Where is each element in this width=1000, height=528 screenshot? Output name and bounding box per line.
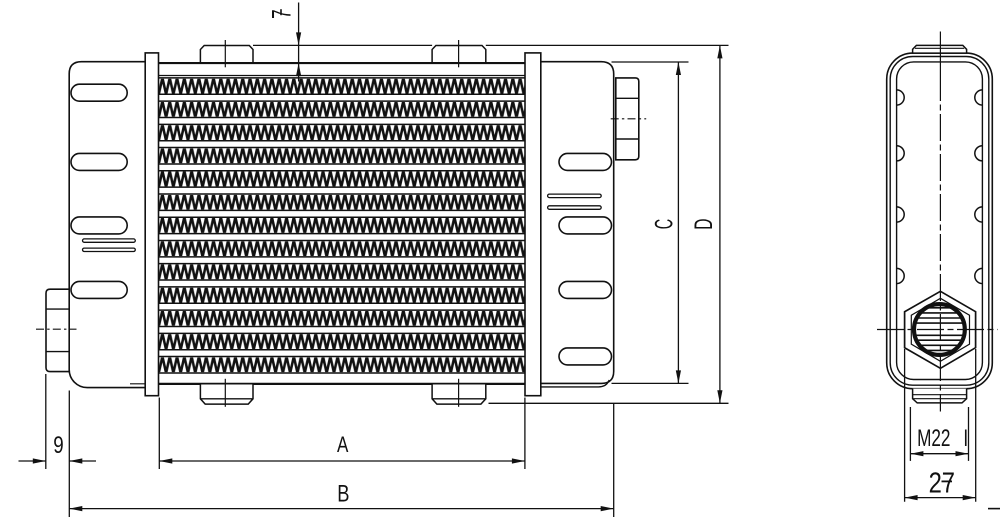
svg-text:9: 9	[53, 431, 63, 459]
svg-text:B: B	[337, 479, 349, 507]
svg-text:I: I	[963, 425, 968, 451]
svg-text:A: A	[337, 433, 349, 458]
svg-text:27: 27	[929, 466, 955, 499]
svg-text:M22: M22	[917, 425, 950, 451]
svg-text:C: C	[650, 219, 678, 230]
svg-text:D: D	[690, 219, 718, 230]
